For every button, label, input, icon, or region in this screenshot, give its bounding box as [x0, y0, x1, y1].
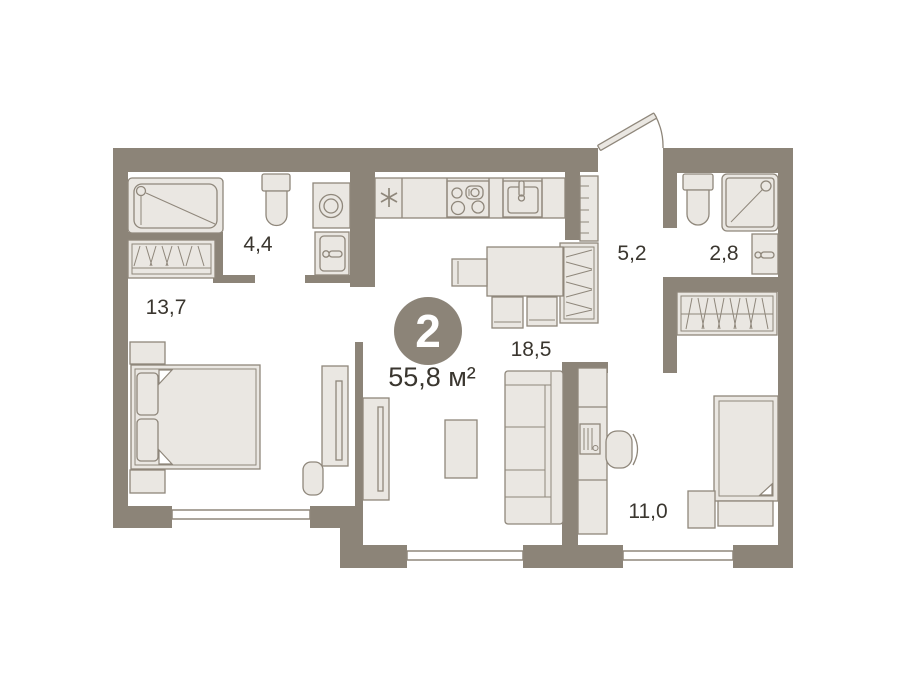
area-label-bathroom-right: 2,8 [709, 242, 738, 265]
wall-segment [305, 275, 355, 283]
total-area-label: 55,8 м² [388, 362, 476, 392]
coffee-table-icon [445, 420, 477, 478]
wall-segment [565, 172, 580, 240]
area-label-bedroom-left: 13,7 [146, 296, 187, 319]
wall-segment [355, 342, 363, 528]
wall-segment [350, 172, 375, 287]
desk-chair-icon [606, 431, 638, 468]
area-label-bathroom-left: 4,4 [243, 233, 273, 256]
wall-segment [213, 275, 255, 283]
toilet-icon [683, 174, 713, 225]
wall-segment [663, 148, 793, 173]
hallway-wardrobe-icon [560, 243, 598, 323]
door-swing-arc [655, 115, 663, 148]
window [172, 510, 310, 519]
window [407, 551, 523, 560]
wall-segment [677, 277, 778, 292]
nightstand-icon [130, 470, 165, 493]
wardrobe-icon [677, 292, 777, 335]
desk-icon [578, 368, 607, 534]
nightstand-icon [130, 342, 165, 364]
sofa-icon [505, 371, 563, 524]
wall-segment [733, 545, 793, 568]
kitchen-fixtures [375, 178, 565, 218]
double-bed-icon [131, 365, 260, 469]
wardrobe-icon [128, 240, 215, 278]
bedroom-right-furniture [578, 292, 778, 534]
window [623, 551, 733, 560]
wall-segment [562, 373, 578, 568]
monitor-icon [580, 424, 600, 454]
area-label-bedroom-right: 11,0 [628, 500, 667, 523]
tv-unit-living-icon [363, 398, 389, 500]
chair-icon [452, 259, 487, 286]
area-label-kitchen-living: 18,5 [511, 338, 552, 361]
sink-icon [315, 232, 349, 275]
wall-segment [113, 148, 598, 172]
nightstand-icon [688, 491, 715, 528]
door-leaf-icon [598, 113, 657, 151]
wall-segment [778, 148, 793, 568]
floorplan-svg: 13,7 4,4 5,2 2,8 18,5 11,0 2 55,8 м² [0, 0, 907, 681]
wall-segment [113, 148, 128, 528]
entrance-door [598, 113, 664, 151]
single-bed-icon [714, 396, 778, 526]
sink-icon [752, 234, 778, 274]
wall-segment [663, 277, 677, 373]
pouf-icon [303, 462, 323, 495]
shower-icon [722, 174, 778, 231]
wall-segment [113, 506, 172, 528]
shelf-unit-icon [580, 176, 598, 241]
tv-unit-bedroom-icon [322, 366, 348, 466]
floorplan-canvas: 13,7 4,4 5,2 2,8 18,5 11,0 2 55,8 м² [0, 0, 907, 681]
wall-segment [340, 528, 363, 568]
rooms-count: 2 [415, 305, 441, 357]
bathtub-icon [128, 178, 223, 233]
type-badge: 2 55,8 м² [388, 297, 476, 392]
wall-segment [363, 545, 407, 568]
toilet-icon [262, 174, 290, 226]
wall-segment [663, 172, 677, 228]
chair-icon [492, 297, 523, 328]
area-label-hallway: 5,2 [617, 242, 646, 265]
chair-icon [527, 297, 557, 326]
dining-table-icon [487, 247, 563, 296]
washing-machine-icon [313, 183, 350, 228]
